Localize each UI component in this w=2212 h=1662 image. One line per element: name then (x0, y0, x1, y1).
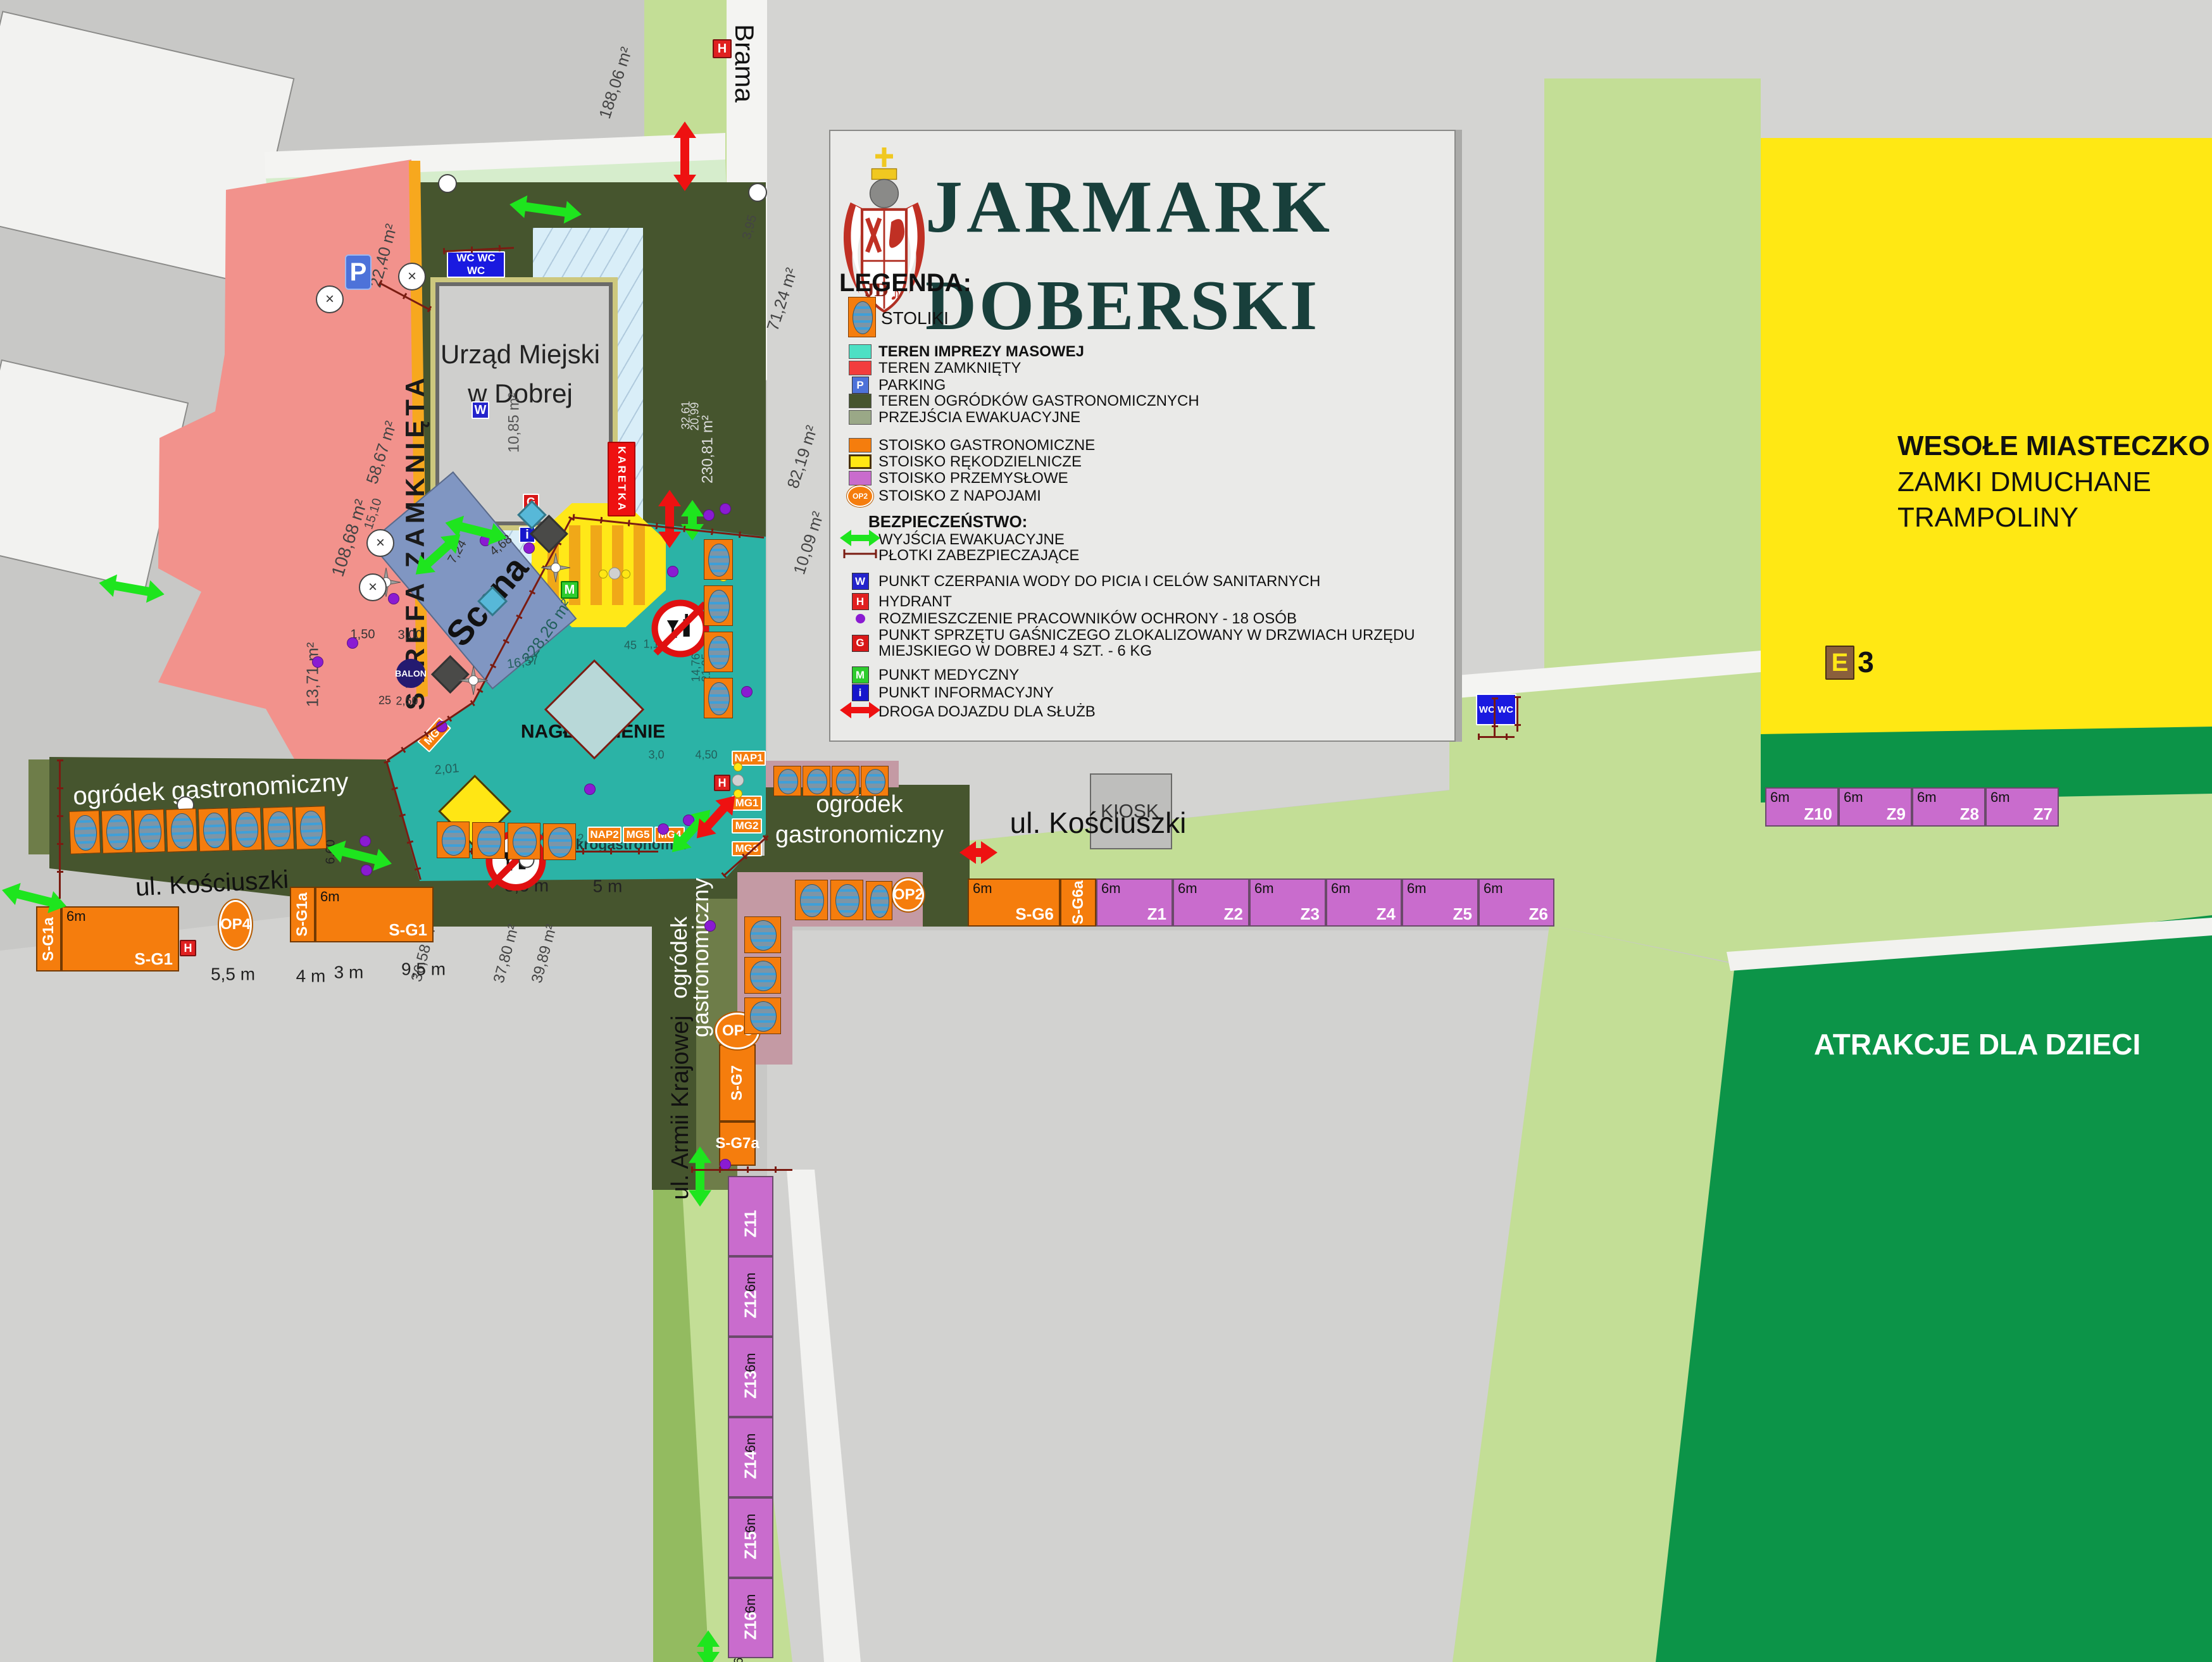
stall-label: S-G6 (1015, 904, 1054, 924)
stall-label: Z15 (741, 1531, 761, 1559)
map-label: 37,80 m² (491, 923, 522, 985)
security-dot (599, 570, 608, 578)
stolik-table-icon (134, 809, 165, 853)
hydrant-icon: H (180, 940, 196, 956)
stall-label: Z4 (1377, 904, 1396, 924)
safety-fence (385, 700, 475, 763)
security-dot (734, 763, 742, 772)
map-label: 4,50 (695, 749, 717, 761)
stall-nap2: NAP2 (587, 827, 622, 843)
stall-label: Z14 (741, 1451, 761, 1479)
stolik-table-top (778, 769, 798, 794)
stolik-table-icon (472, 822, 505, 859)
stolik-table-icon (437, 822, 470, 858)
stall-z9: 6mZ9 (1839, 787, 1912, 827)
stolik-table-top (548, 827, 572, 858)
stolik-table-icon (295, 806, 327, 850)
stall-z14: 6mZ14 (728, 1417, 773, 1497)
evacuation-exit-arrow-icon (697, 1630, 720, 1662)
stolik-table-icon (861, 766, 889, 796)
stall-size: 6m (1990, 789, 2010, 806)
stolik-table-icon (230, 807, 262, 851)
funfair-line2: ZAMKI DMUCHANE (1897, 468, 2151, 497)
stall-label: Z16 (741, 1611, 761, 1640)
stall-size: 6m (973, 880, 992, 897)
stolik-table-icon (866, 881, 892, 920)
security-dot (703, 509, 715, 521)
map-label: 20,99 (689, 402, 701, 430)
stolik-table-icon (704, 585, 733, 626)
stolik-table-top (750, 920, 777, 951)
stall-z8: 6mZ8 (1912, 787, 1985, 827)
stall-size: 6m (1254, 880, 1274, 897)
safety-fence (1478, 734, 1515, 740)
stolik-table-icon (830, 880, 863, 920)
stall-label: S-G7a (715, 1135, 759, 1153)
wc-triple-sign: WC WC WC (447, 251, 505, 278)
stall-label: Z11 (741, 1210, 761, 1237)
gastro-garden-left: ogródek gastronomiczny (72, 769, 349, 810)
map-label: 58,67 m² (363, 419, 400, 486)
map-diamond (544, 659, 645, 760)
stall-size: 6m (1917, 789, 1937, 806)
stolik-table-icon (543, 823, 576, 860)
map-label: 3,00 (398, 629, 423, 642)
stall-z6: 6mZ6 (1478, 878, 1554, 927)
stall-size: 6m (1407, 880, 1427, 897)
attractions-label: ATRAKCJE DLA DZIECI (1814, 1029, 2140, 1059)
map-label: 188,06 m² (596, 45, 635, 121)
evacuation-exit-arrow-icon (97, 572, 166, 606)
medical-point-icon: M (561, 581, 578, 599)
security-dot (622, 570, 630, 578)
stall-size: 6m (742, 1434, 759, 1453)
op-point-op2: OP2 (892, 878, 924, 911)
service-road-arrow-icon (959, 841, 997, 864)
stall-size: 6m (1101, 880, 1121, 897)
stall-label: Z6 (1529, 904, 1548, 924)
stall-label: Z3 (1301, 904, 1320, 924)
stall-label: Z13 (741, 1370, 761, 1399)
gastro-garden-center2: gastronomiczny (775, 823, 944, 848)
evacuation-exit-arrow-icon (508, 193, 584, 226)
map-label: 4 m (296, 966, 326, 985)
compass-star-icon (541, 553, 570, 582)
stolik-table-icon (198, 808, 230, 852)
stall-label: Z5 (1453, 904, 1472, 924)
security-dot (720, 503, 731, 515)
map-label: 108,68 m² (328, 497, 371, 579)
op-point-op4: OP4 (219, 900, 252, 949)
evacuation-exit-arrow-icon (689, 1147, 711, 1207)
map-label: 230,81 m² (699, 415, 715, 484)
stall-mg2: MG2 (732, 818, 762, 834)
stall-z11: Z11 (728, 1176, 773, 1256)
stolik-table-icon (744, 916, 781, 953)
stall-label: Z8 (1960, 804, 1979, 824)
stolik-table-top (106, 814, 130, 850)
stall-z15: 6mZ15 (728, 1497, 773, 1578)
stall-s-g7: S-G7 (719, 1044, 756, 1122)
stolik-table-top (708, 682, 730, 716)
survey-circle: × (398, 263, 426, 291)
stolik-table-top (708, 590, 730, 623)
map-label: 16,57 (506, 654, 539, 672)
stolik-table-top (708, 636, 730, 670)
stolik-table-top (74, 815, 97, 851)
map-label: 45 (624, 640, 637, 652)
security-dot (741, 686, 753, 697)
stolik-table-icon (69, 810, 101, 854)
safety-fence (721, 834, 770, 878)
map-label: 10,09 m² (790, 509, 827, 577)
gastro-garden-vert2: gastronomiczny (689, 878, 713, 1037)
map-label: 10,85 m² (506, 393, 522, 453)
stolik-table-top (513, 827, 537, 857)
stolik-table-icon (704, 539, 733, 580)
stolik-table-icon (704, 678, 733, 718)
stolik-table-icon (795, 880, 828, 920)
stall-s-g1: 6mS-G1 (315, 887, 434, 942)
stolik-table-icon (803, 766, 830, 796)
stall-s-g6: 6mS-G6 (968, 878, 1060, 927)
map-label: 2,50 (396, 696, 418, 708)
hydrant-icon: H (714, 775, 730, 791)
ambulance-bay: KARETKA (608, 442, 635, 516)
street-kosciuszki-right: ul. Kościuszki (1010, 808, 1187, 838)
e3-number: 3 (1858, 647, 1874, 677)
map-label: 22,40 m² (367, 222, 401, 289)
stall-mg5: MG5 (623, 827, 653, 843)
map-label: 9,5 m (401, 959, 446, 978)
map-label: 13,71 m² (304, 642, 321, 708)
stolik-table-icon (832, 766, 859, 796)
stolik-table-top (203, 812, 227, 848)
stall-z5: 6mZ5 (1402, 878, 1478, 927)
stall-size: 6m (742, 1353, 759, 1373)
security-dot (584, 784, 596, 795)
stall-z16: 6mZ16 (728, 1578, 773, 1658)
stall-label: Z12 (741, 1290, 761, 1318)
stall-size: 6m (320, 889, 340, 905)
stall-z3: 6mZ3 (1249, 878, 1326, 927)
survey-circle: × (359, 573, 387, 601)
stolik-table-top (442, 825, 466, 856)
stall-size: 6m (742, 1514, 759, 1534)
stall-z4: 6mZ4 (1326, 878, 1402, 927)
water-point-icon: W (472, 401, 489, 419)
map-label: 39,89 m² (529, 923, 560, 985)
stall-z12: 6mZ12 (728, 1256, 773, 1337)
map-label: 3,0 (648, 749, 664, 761)
stolik-table-icon (744, 957, 781, 994)
stolik-table-top (800, 884, 824, 918)
stall-size: 6m (1178, 880, 1197, 897)
stolik-table-top (268, 811, 291, 847)
no-alcohol-sign-icon (651, 599, 709, 658)
map-label: 2,01 (434, 762, 460, 777)
compass-star-icon (459, 666, 488, 695)
service-road-arrow-icon (673, 122, 696, 191)
stall-z2: 6mZ2 (1173, 878, 1249, 927)
stolik-table-top (171, 813, 194, 849)
stall-size: 6m (66, 908, 86, 925)
stall-label: S-G7 (728, 1065, 746, 1101)
security-dot (523, 542, 535, 554)
stall-size: 6m (1770, 789, 1790, 806)
gastro-garden-center1: ogródek (816, 792, 903, 818)
service-road-arrow-icon (658, 490, 681, 548)
stall-label: S-G1a (40, 917, 58, 961)
stall-size: 6m (742, 1273, 759, 1292)
e3-icon: E (1825, 646, 1854, 680)
safety-fence (1515, 696, 1521, 732)
stall-s-g6a: S-G6a (1060, 878, 1096, 927)
stolik-table-top (300, 810, 323, 846)
security-dot (609, 568, 621, 580)
stolik-table-top (235, 811, 259, 847)
street-kosciuszki-left: ul. Kościuszki (135, 866, 289, 901)
safety-fence (1492, 697, 1498, 737)
stall-label: S-G1a (294, 892, 311, 936)
stall-label: Z1 (1147, 904, 1166, 924)
stall-s-g1a: S-G1a (36, 906, 61, 972)
map-label: 82,19 m² (784, 423, 821, 490)
stolik-table-top (836, 769, 856, 794)
stolik-table-icon (508, 823, 541, 859)
stall-label: Z10 (1804, 804, 1832, 824)
stall-label: S-G6a (1070, 880, 1087, 924)
stolik-table-top (708, 544, 730, 577)
stall-label: Z9 (1887, 804, 1906, 824)
stolik-table-top (750, 1001, 777, 1032)
security-dot (732, 775, 744, 787)
stolik-table-top (865, 769, 885, 794)
stolik-table-top (139, 813, 162, 849)
stall-size: 6m (742, 1594, 759, 1614)
stall-size: 6m (1844, 789, 1863, 806)
stall-label: S-G1 (389, 920, 427, 940)
stolik-table-icon (101, 809, 133, 854)
stolik-table-top (807, 769, 827, 794)
street-brama: Brama (730, 24, 758, 103)
funfair-line1: WESOŁE MIASTECZKO (1897, 432, 2210, 461)
stolik-table-icon (704, 632, 733, 672)
stall-size: 6m (1484, 880, 1503, 897)
stall-size: 6m (1331, 880, 1351, 897)
stolik-table-icon (166, 808, 197, 853)
stolik-table-icon (744, 997, 781, 1034)
parking-icon: P (345, 254, 372, 290)
stolik-table-icon (263, 806, 294, 851)
funfair-line3: TRAMPOLINY (1897, 503, 2078, 532)
stall-s-g1: 6mS-G1 (61, 906, 179, 972)
hydrant-icon: H (713, 39, 732, 58)
map-label: 5,5 m (211, 965, 255, 983)
security-dot (658, 823, 669, 835)
survey-circle: × (316, 285, 344, 313)
site-plan-map: JD ♪ JARMARK DOBERSKI LEGENDA: STOLIKI B… (0, 0, 2212, 1662)
stall-label: Z2 (1224, 904, 1243, 924)
stall-label: S-G1 (134, 949, 173, 969)
evacuation-exit-arrow-icon (681, 500, 704, 540)
security-dot (312, 656, 323, 668)
stolik-table-top (870, 885, 890, 917)
map-label: 25 (378, 695, 391, 707)
security-dot (667, 566, 678, 577)
stall-z10: 6mZ10 (1765, 787, 1839, 827)
security-dot (704, 920, 716, 932)
kiosk-label: KIOSK (1101, 801, 1159, 822)
map-label: 3,95 (740, 213, 759, 241)
stolik-table-top (835, 884, 859, 918)
stolik-table-icon (773, 766, 801, 796)
stolik-table-top (477, 826, 501, 856)
stall-label: Z7 (2034, 804, 2053, 824)
stall-s-g1a: S-G1a (290, 887, 315, 942)
map-label: 5 m (593, 877, 623, 895)
safety-fence (57, 759, 63, 899)
stall-z7: 6mZ7 (1985, 787, 2059, 827)
stall-z13: 6mZ13 (728, 1337, 773, 1417)
safety-fence (691, 1166, 792, 1173)
survey-circle: × (366, 529, 394, 557)
stolik-table-top (750, 961, 777, 991)
survey-circle (748, 183, 767, 202)
building-urzad-line1: Urząd Miejski (441, 341, 600, 368)
map-label: 3 m (334, 963, 364, 981)
map-label: 71,24 m² (764, 266, 801, 333)
stall-z1: 6mZ1 (1096, 878, 1173, 927)
balloon-point: BALON (396, 659, 425, 688)
security-dot (347, 637, 358, 649)
survey-circle (438, 174, 457, 193)
